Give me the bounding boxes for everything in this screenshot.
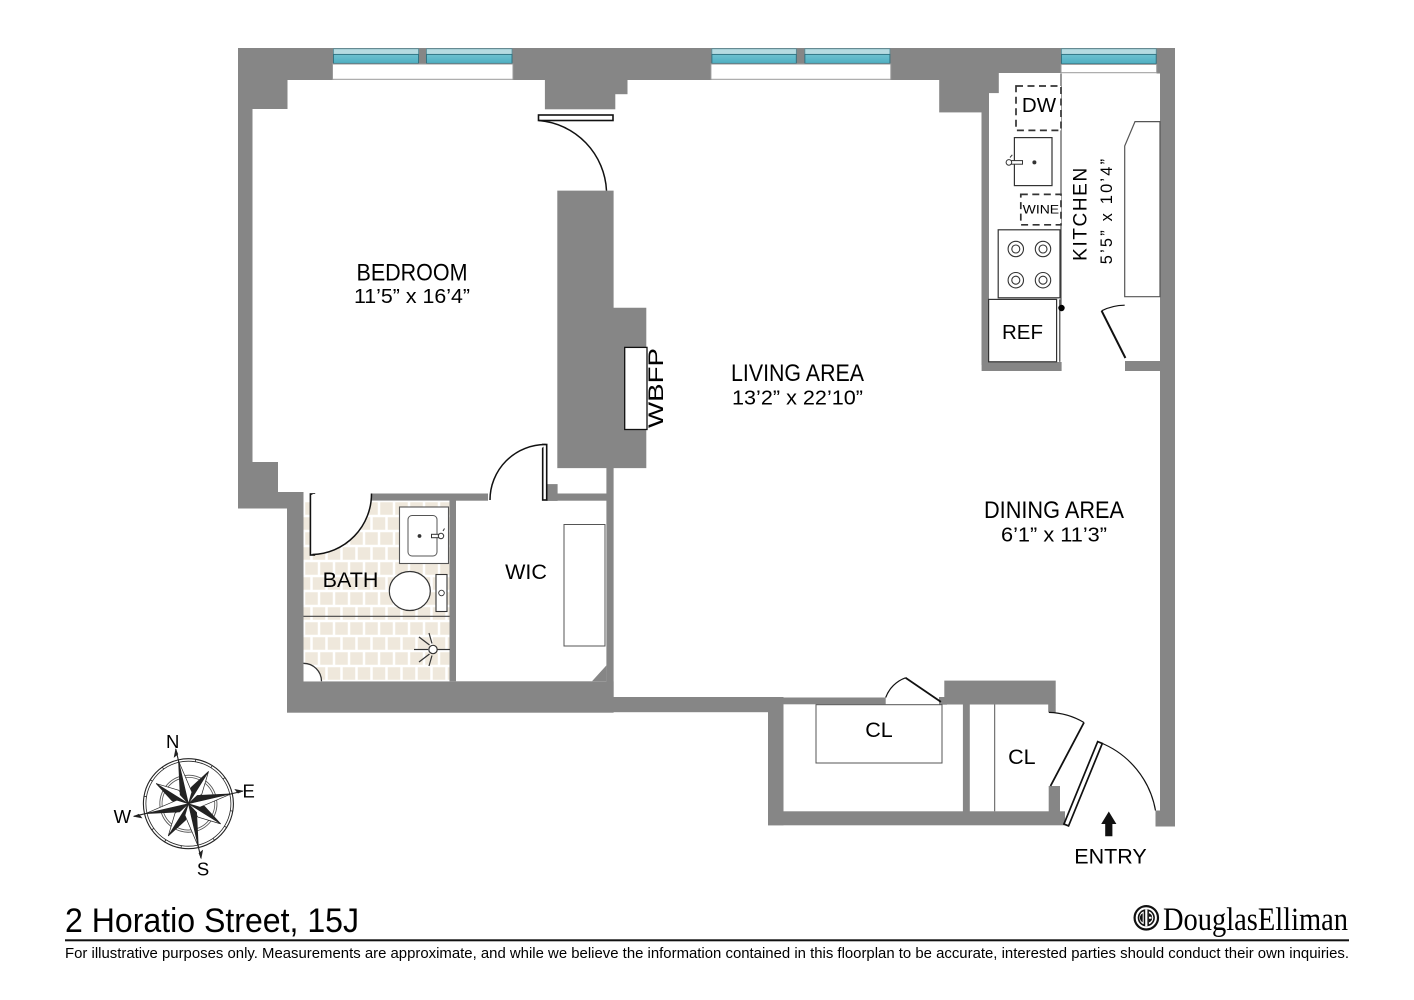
svg-text:WIC: WIC	[505, 560, 547, 584]
svg-text:WINE: WINE	[1023, 203, 1060, 217]
svg-text:REF: REF	[1002, 321, 1043, 344]
svg-text:DouglasElliman: DouglasElliman	[1163, 902, 1348, 938]
svg-text:6’1” x 11’3”: 6’1” x 11’3”	[1001, 524, 1107, 547]
svg-text:KITCHEN: KITCHEN	[1071, 166, 1092, 261]
svg-text:LIVING AREA: LIVING AREA	[731, 360, 865, 387]
svg-text:E: E	[243, 781, 255, 802]
svg-text:S: S	[197, 859, 209, 880]
svg-text:CL: CL	[1008, 745, 1036, 769]
svg-text:CL: CL	[865, 718, 893, 742]
svg-text:N: N	[166, 731, 179, 752]
svg-text:DINING AREA: DINING AREA	[984, 497, 1125, 524]
svg-text:W: W	[114, 806, 132, 827]
svg-text:WBFP: WBFP	[644, 348, 668, 428]
svg-text:BATH: BATH	[323, 568, 379, 592]
svg-text:ENTRY: ENTRY	[1074, 845, 1146, 869]
svg-text:For illustrative purposes only: For illustrative purposes only. Measurem…	[65, 946, 1349, 962]
svg-text:13’2” x 22’10”: 13’2” x 22’10”	[732, 387, 863, 410]
svg-text:BEDROOM: BEDROOM	[357, 260, 468, 287]
svg-text:11’5” x 16’4”: 11’5” x 16’4”	[354, 285, 470, 308]
svg-text:5’5” x 10’4”: 5’5” x 10’4”	[1098, 157, 1116, 264]
svg-text:2 Horatio Street, 15J: 2 Horatio Street, 15J	[65, 902, 359, 940]
svg-text:DW: DW	[1022, 94, 1057, 117]
